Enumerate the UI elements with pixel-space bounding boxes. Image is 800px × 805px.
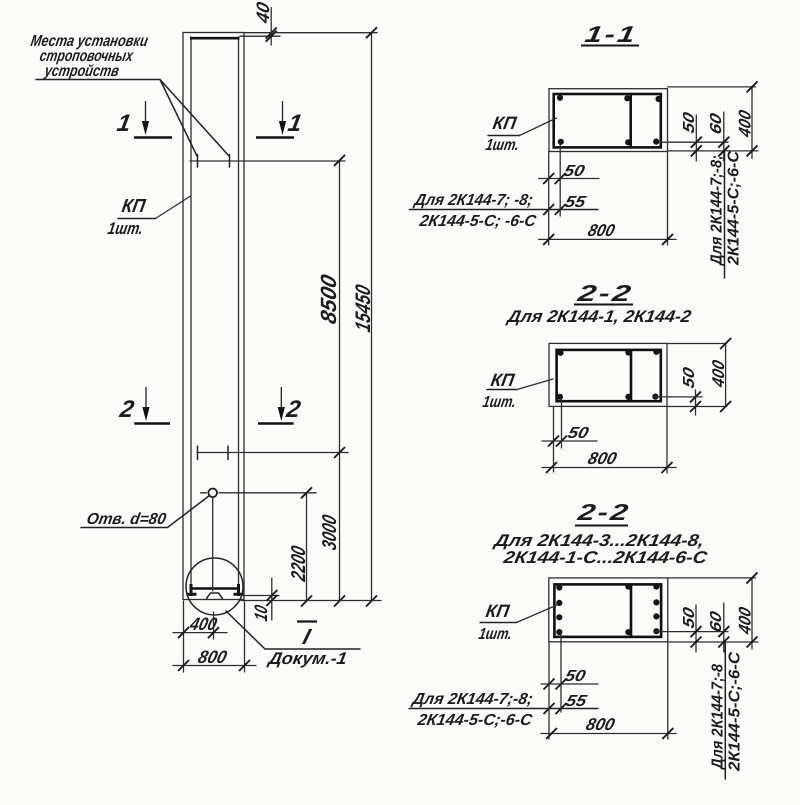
- svg-text:устройств: устройств: [43, 62, 121, 80]
- svg-text:800: 800: [196, 646, 229, 667]
- svg-text:Для 2К144-7;-8: Для 2К144-7;-8: [710, 664, 727, 771]
- svg-text:400: 400: [735, 108, 755, 140]
- svg-text:КП: КП: [484, 601, 511, 621]
- svg-text:Отв. d=80: Отв. d=80: [85, 510, 167, 528]
- svg-text:15450: 15450: [351, 282, 375, 334]
- svg-text:1шт.: 1шт.: [106, 218, 144, 238]
- svg-text:400: 400: [735, 605, 755, 637]
- svg-text:1шт.: 1шт.: [481, 393, 517, 411]
- svg-text:2К144-5-С;-6-С: 2К144-5-С;-6-С: [415, 711, 534, 729]
- svg-text:800: 800: [586, 220, 617, 240]
- svg-text:800: 800: [586, 448, 619, 468]
- svg-text:400: 400: [708, 358, 728, 390]
- svg-text:8500: 8500: [316, 272, 341, 327]
- svg-text:Для 2К144-7; -8;: Для 2К144-7; -8;: [411, 191, 534, 209]
- svg-text:Для 2К144-7;-8;: Для 2К144-7;-8;: [709, 155, 726, 267]
- svg-text:800: 800: [584, 714, 617, 734]
- svg-text:Докум.-1: Докум.-1: [265, 648, 349, 668]
- svg-text:2К144-5-С;-6-С: 2К144-5-С;-6-С: [727, 651, 744, 772]
- svg-text:3000: 3000: [319, 512, 341, 552]
- svg-text:1шт.: 1шт.: [477, 625, 513, 643]
- svg-text:Для 2К144-1, 2К144-2: Для 2К144-1, 2К144-2: [504, 306, 693, 326]
- svg-text:1-1: 1-1: [583, 21, 640, 47]
- svg-text:400: 400: [187, 613, 219, 634]
- svg-text:2-2: 2-2: [575, 280, 636, 306]
- svg-text:2К144-1-С...2К144-6-С: 2К144-1-С...2К144-6-С: [501, 547, 709, 567]
- svg-text:КП: КП: [491, 113, 518, 133]
- svg-text:2-2: 2-2: [575, 499, 633, 525]
- svg-text:1шт.: 1шт.: [484, 136, 520, 154]
- svg-text:2200: 2200: [288, 543, 310, 584]
- svg-text:2К144-5-С;-6-С: 2К144-5-С;-6-С: [726, 150, 743, 266]
- svg-text:КП: КП: [489, 370, 516, 390]
- svg-text:2К144-5-С; -6-С: 2К144-5-С; -6-С: [417, 212, 537, 230]
- svg-text:Для 2К144-7;-8;: Для 2К144-7;-8;: [409, 690, 534, 708]
